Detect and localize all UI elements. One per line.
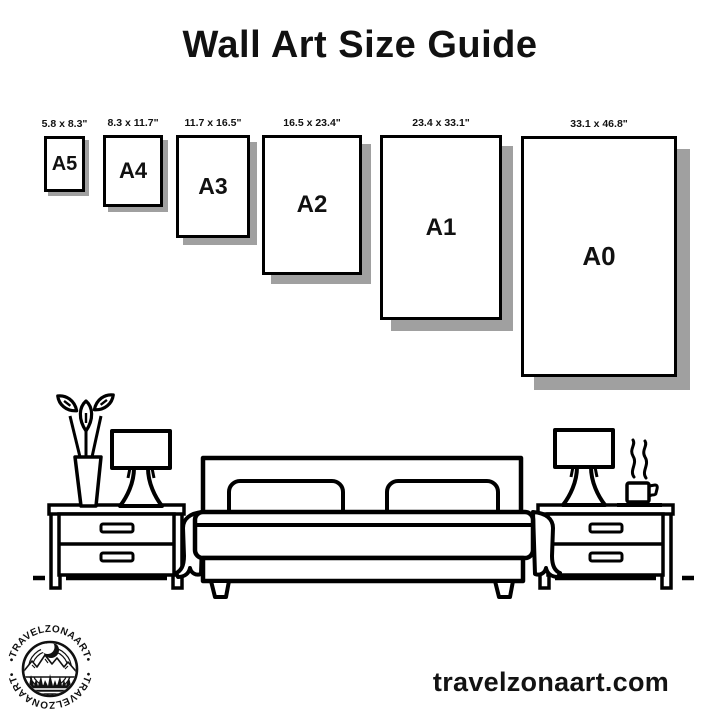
size-code: A3 — [198, 173, 227, 200]
size-frame-a5: 5.8 x 8.3" A5 — [44, 136, 85, 192]
size-label: 23.4 x 33.1" — [412, 117, 470, 129]
size-label: 8.3 x 11.7" — [107, 117, 158, 129]
logo-emblem — [19, 640, 81, 700]
size-label: 16.5 x 23.4" — [283, 117, 341, 129]
plant-icon — [55, 391, 116, 506]
size-frame-a1: 23.4 x 33.1" A1 — [380, 135, 502, 320]
size-label: 11.7 x 16.5" — [185, 117, 242, 129]
nightstand-left-icon — [49, 505, 184, 588]
size-frame-a3: 11.7 x 16.5" A3 — [176, 135, 250, 238]
size-code: A4 — [119, 158, 147, 184]
size-guide-poster: Wall Art Size Guide 5.8 x 8.3" A5 8.3 x … — [0, 0, 720, 720]
coffee-cup-icon — [617, 440, 662, 505]
steam-icon — [632, 440, 647, 478]
size-frame-a2: 16.5 x 23.4" A2 — [262, 135, 362, 275]
website-url: travelzonaart.com — [386, 667, 716, 698]
size-frame-a0: 33.1 x 46.8" A0 — [521, 136, 677, 377]
duvet — [195, 512, 533, 558]
bed-foot-left — [211, 581, 229, 597]
bed-base — [203, 558, 523, 581]
size-label: 5.8 x 8.3" — [42, 118, 88, 130]
page-title: Wall Art Size Guide — [0, 24, 720, 67]
vase-icon — [75, 457, 101, 506]
size-code: A2 — [297, 191, 328, 219]
size-frame-a4: 8.3 x 11.7" A4 — [103, 135, 163, 207]
brand-logo: •TRAVELZONAART• •TRAVELZONAART• — [5, 622, 95, 712]
bed-foot-right — [495, 581, 513, 597]
size-code: A0 — [582, 241, 615, 272]
lamp-right-icon — [555, 430, 613, 505]
size-label: 33.1 x 46.8" — [570, 118, 628, 130]
lamp-left-icon — [112, 431, 170, 506]
bedroom-illustration — [0, 378, 720, 603]
size-code: A1 — [426, 214, 457, 242]
bed-icon — [176, 458, 560, 597]
size-code: A5 — [52, 153, 78, 176]
